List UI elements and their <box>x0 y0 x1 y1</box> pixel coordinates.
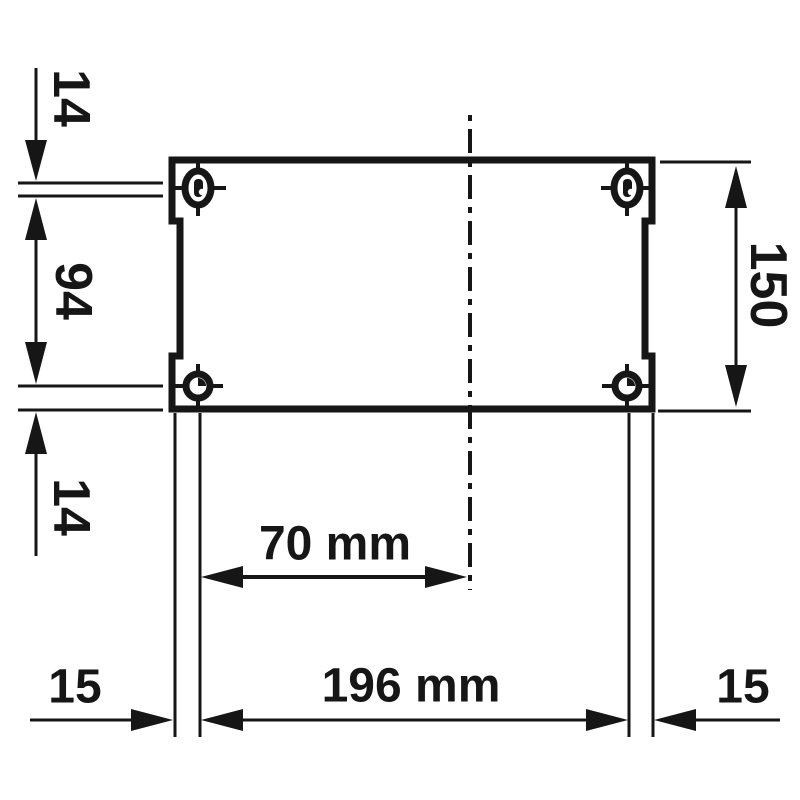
dim-right-margin: 15 <box>654 661 780 732</box>
arrowhead-left <box>201 566 243 588</box>
mounting-hole-bottom-left <box>173 364 223 409</box>
arrowhead-right <box>425 566 467 588</box>
arrowhead-right <box>586 709 628 731</box>
arrowhead-up <box>25 198 47 240</box>
arrowhead-down <box>725 365 747 407</box>
arrowhead-left <box>201 709 243 731</box>
dim-label-left-margin: 15 <box>48 661 101 714</box>
mounting-hole-top-left <box>172 162 226 216</box>
enclosure-outline <box>172 160 652 409</box>
mounting-hole-bottom-right <box>602 364 652 409</box>
dim-label-top-offset: 14 <box>42 69 100 127</box>
dim-label-horizontal-spacing: 196 mm <box>322 660 501 713</box>
dim-top-hole-offset: 14 <box>25 68 100 181</box>
slot-screw-notch <box>199 189 205 195</box>
mounting-hole-top-right <box>601 162 655 216</box>
dim-label-center-to-hole: 70 mm <box>259 518 411 571</box>
arrowhead-down <box>25 140 47 181</box>
dim-bottom-hole-offset: 14 <box>25 412 100 556</box>
slot-screw-notch <box>628 189 634 195</box>
dim-label-vertical-spacing: 94 <box>44 262 102 320</box>
dim-label-right-margin: 15 <box>716 661 769 714</box>
arrowhead-up <box>725 166 747 208</box>
arrowhead-right <box>131 709 173 731</box>
dim-body-height: 150 <box>658 162 797 411</box>
dimension-drawing: 14 94 14 150 70 mm 15 <box>0 0 800 800</box>
dim-hole-horizontal-spacing: 196 mm <box>201 660 628 732</box>
arrowhead-left <box>654 709 696 731</box>
dim-label-bottom-offset: 14 <box>42 478 100 536</box>
dimension-drawing-page: 14 94 14 150 70 mm 15 <box>0 0 800 800</box>
dim-left-margin: 15 <box>30 661 173 732</box>
arrowhead-down <box>25 342 47 384</box>
arrowhead-up <box>25 412 47 454</box>
dim-label-body-height: 150 <box>739 242 797 329</box>
dim-center-to-hole: 70 mm <box>201 518 467 589</box>
dim-hole-vertical-spacing: 94 <box>25 198 102 384</box>
